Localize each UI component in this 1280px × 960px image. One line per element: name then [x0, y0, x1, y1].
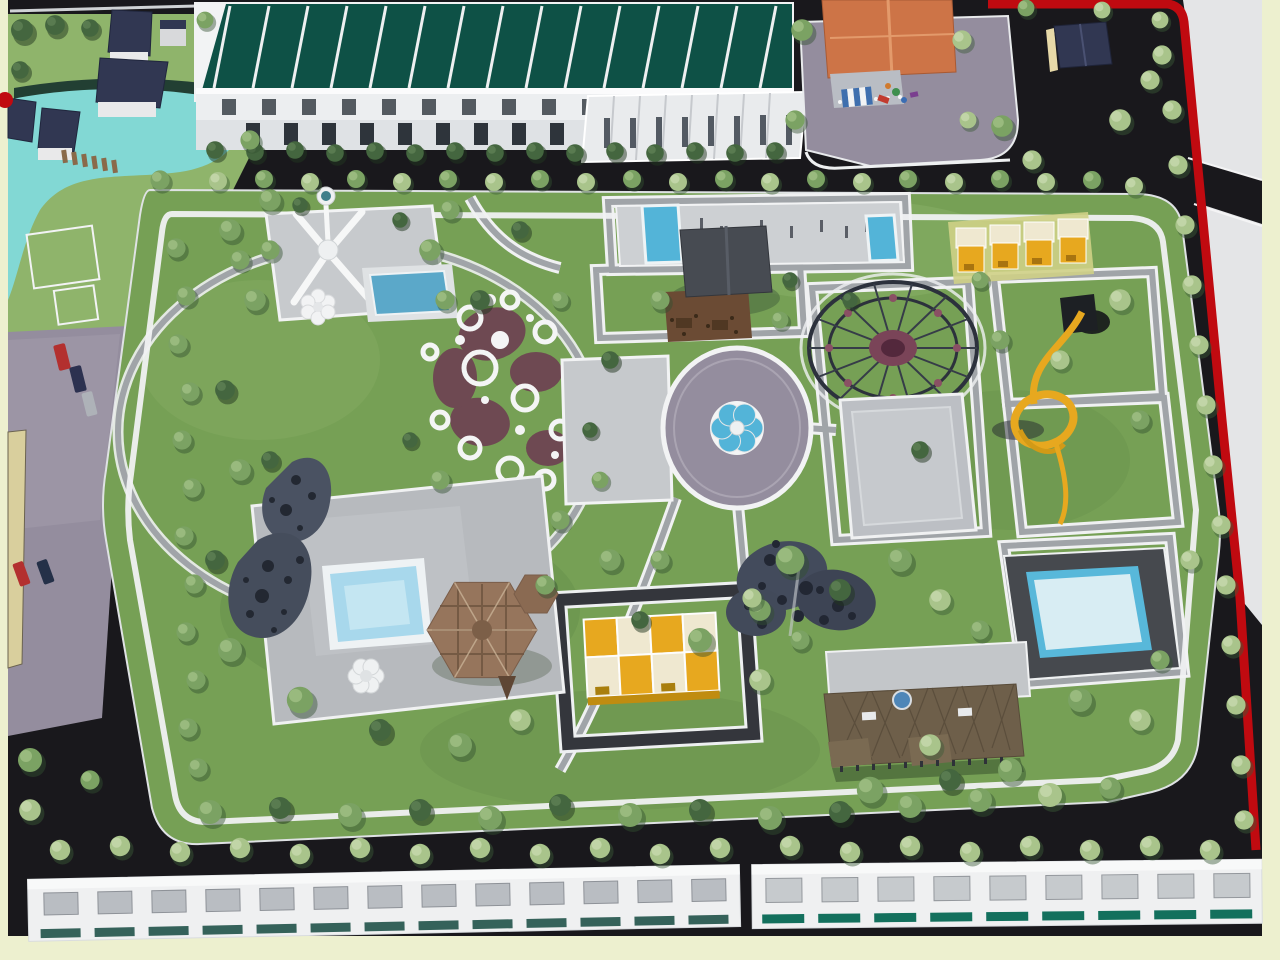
central-park — [103, 187, 1220, 844]
circular-plaza — [663, 348, 811, 508]
platform-pool — [322, 558, 432, 650]
clubhouse-dome — [893, 691, 911, 709]
flower-fountain — [710, 401, 764, 455]
striped-awning — [841, 86, 873, 107]
central-square-plaza — [562, 356, 672, 504]
aerial-masterplan-render — [0, 0, 1280, 960]
clubhouse — [824, 642, 1030, 782]
sport-plaza — [840, 394, 976, 538]
yellow-pavilion-row — [948, 212, 1094, 284]
render-canvas — [0, 0, 1280, 960]
townhouse-row-south-right — [752, 859, 1263, 928]
teal-roof-band — [202, 4, 792, 90]
leisure-platform — [228, 458, 564, 724]
yellow-cabana-row — [584, 613, 720, 706]
fitness-pool-west — [642, 205, 682, 263]
flower-bench — [348, 659, 384, 693]
window-bays — [766, 873, 1250, 902]
fitness-pool-east — [866, 215, 898, 261]
